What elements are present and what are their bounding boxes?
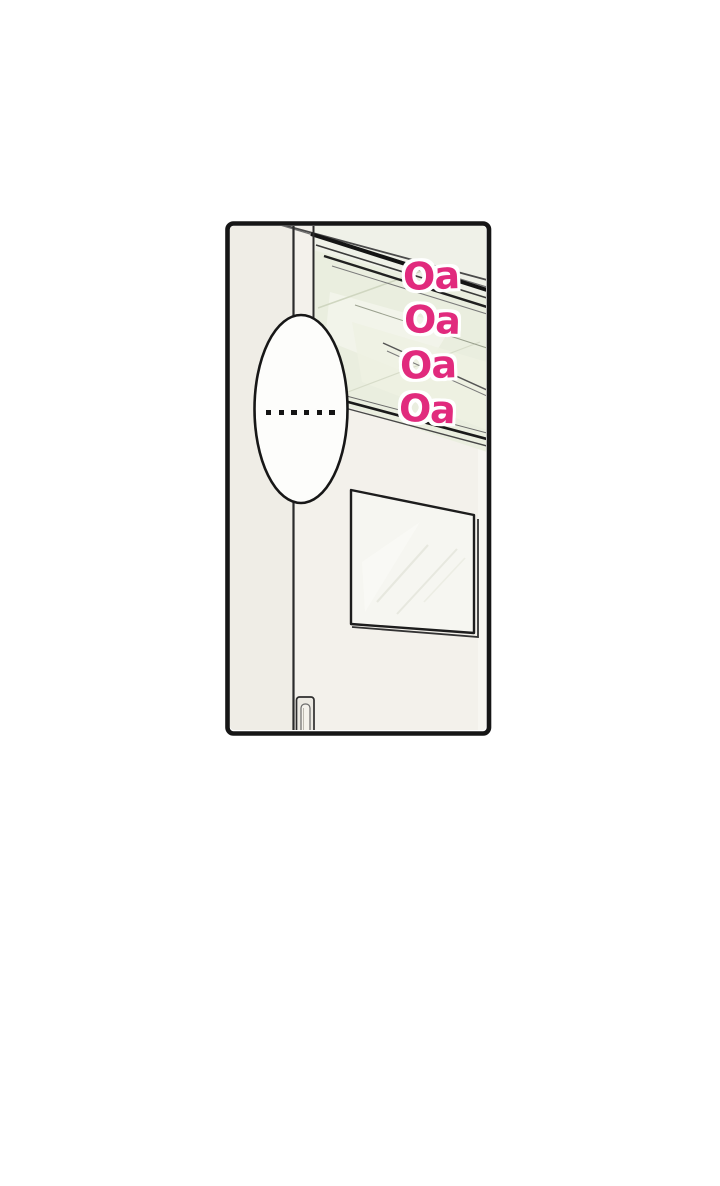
speech-bubble: [255, 315, 348, 503]
ellipsis-dot: [329, 410, 334, 415]
ellipsis-dot: [279, 410, 284, 415]
ellipsis-dot: [266, 410, 271, 415]
sfx-text-3: Oa: [400, 345, 457, 384]
comic-page: Oa Oa Oa Oa: [0, 0, 720, 1186]
sfx-text-1: Oa: [402, 256, 459, 296]
speech-bubble-ellipsis: [266, 410, 335, 415]
ellipsis-dot: [304, 410, 309, 415]
door-artwork: [0, 0, 720, 1186]
ellipsis-dot: [317, 410, 322, 415]
sfx-text-2: Oa: [403, 300, 460, 340]
ellipsis-dot: [291, 410, 296, 415]
sfx-text-4: Oa: [398, 389, 456, 430]
